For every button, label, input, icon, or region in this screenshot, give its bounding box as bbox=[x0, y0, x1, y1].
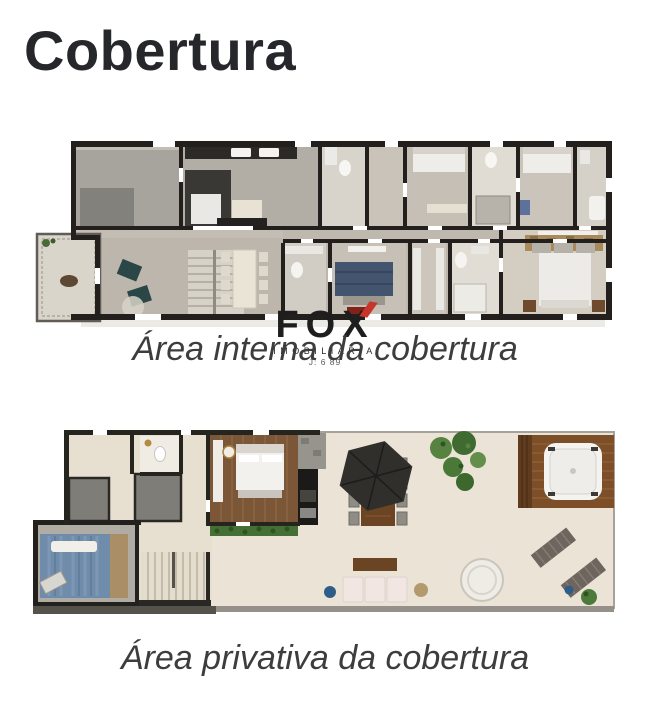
blue-bench bbox=[520, 200, 530, 215]
plan2-hedge bbox=[210, 526, 298, 536]
toilet bbox=[155, 447, 166, 462]
balcony-table bbox=[60, 275, 78, 287]
kitchen-island bbox=[232, 200, 262, 220]
plan2-bottom-shadow bbox=[33, 606, 216, 614]
pool-ledge bbox=[51, 541, 97, 552]
sofa-seat bbox=[343, 577, 363, 602]
listing-image: Cobertura bbox=[0, 0, 650, 707]
plan2-round-table bbox=[461, 559, 503, 601]
wardrobe bbox=[213, 440, 223, 502]
plant bbox=[581, 589, 597, 605]
kitchen-sink bbox=[259, 148, 279, 157]
pouf bbox=[414, 583, 428, 597]
blue-planter bbox=[324, 586, 336, 598]
blue-bed bbox=[335, 262, 393, 296]
floor-plan-private bbox=[31, 430, 619, 620]
toilet bbox=[291, 262, 303, 278]
caption-private-area: Área privativa da cobertura bbox=[0, 639, 650, 678]
plan2-pool-area bbox=[33, 520, 141, 608]
toilet bbox=[339, 160, 351, 176]
toilet bbox=[455, 252, 467, 268]
fridge bbox=[191, 194, 221, 224]
mirror bbox=[223, 446, 235, 458]
kitchen-sink bbox=[231, 148, 251, 157]
plan2-stairs bbox=[139, 552, 211, 607]
plan2-bathroom bbox=[140, 436, 181, 472]
sofa-seat bbox=[365, 577, 385, 602]
page-title: Cobertura bbox=[24, 18, 296, 83]
coffee-table bbox=[353, 558, 397, 571]
toilet bbox=[485, 152, 497, 168]
balcony-plant bbox=[42, 239, 50, 247]
bathtub bbox=[589, 196, 605, 220]
master-bed bbox=[539, 253, 591, 306]
caption-internal-area: Área interna da cobertura bbox=[0, 330, 650, 369]
plan2-hot-tub bbox=[518, 435, 614, 508]
sofa-seat bbox=[387, 577, 407, 602]
dining-table bbox=[233, 250, 256, 308]
